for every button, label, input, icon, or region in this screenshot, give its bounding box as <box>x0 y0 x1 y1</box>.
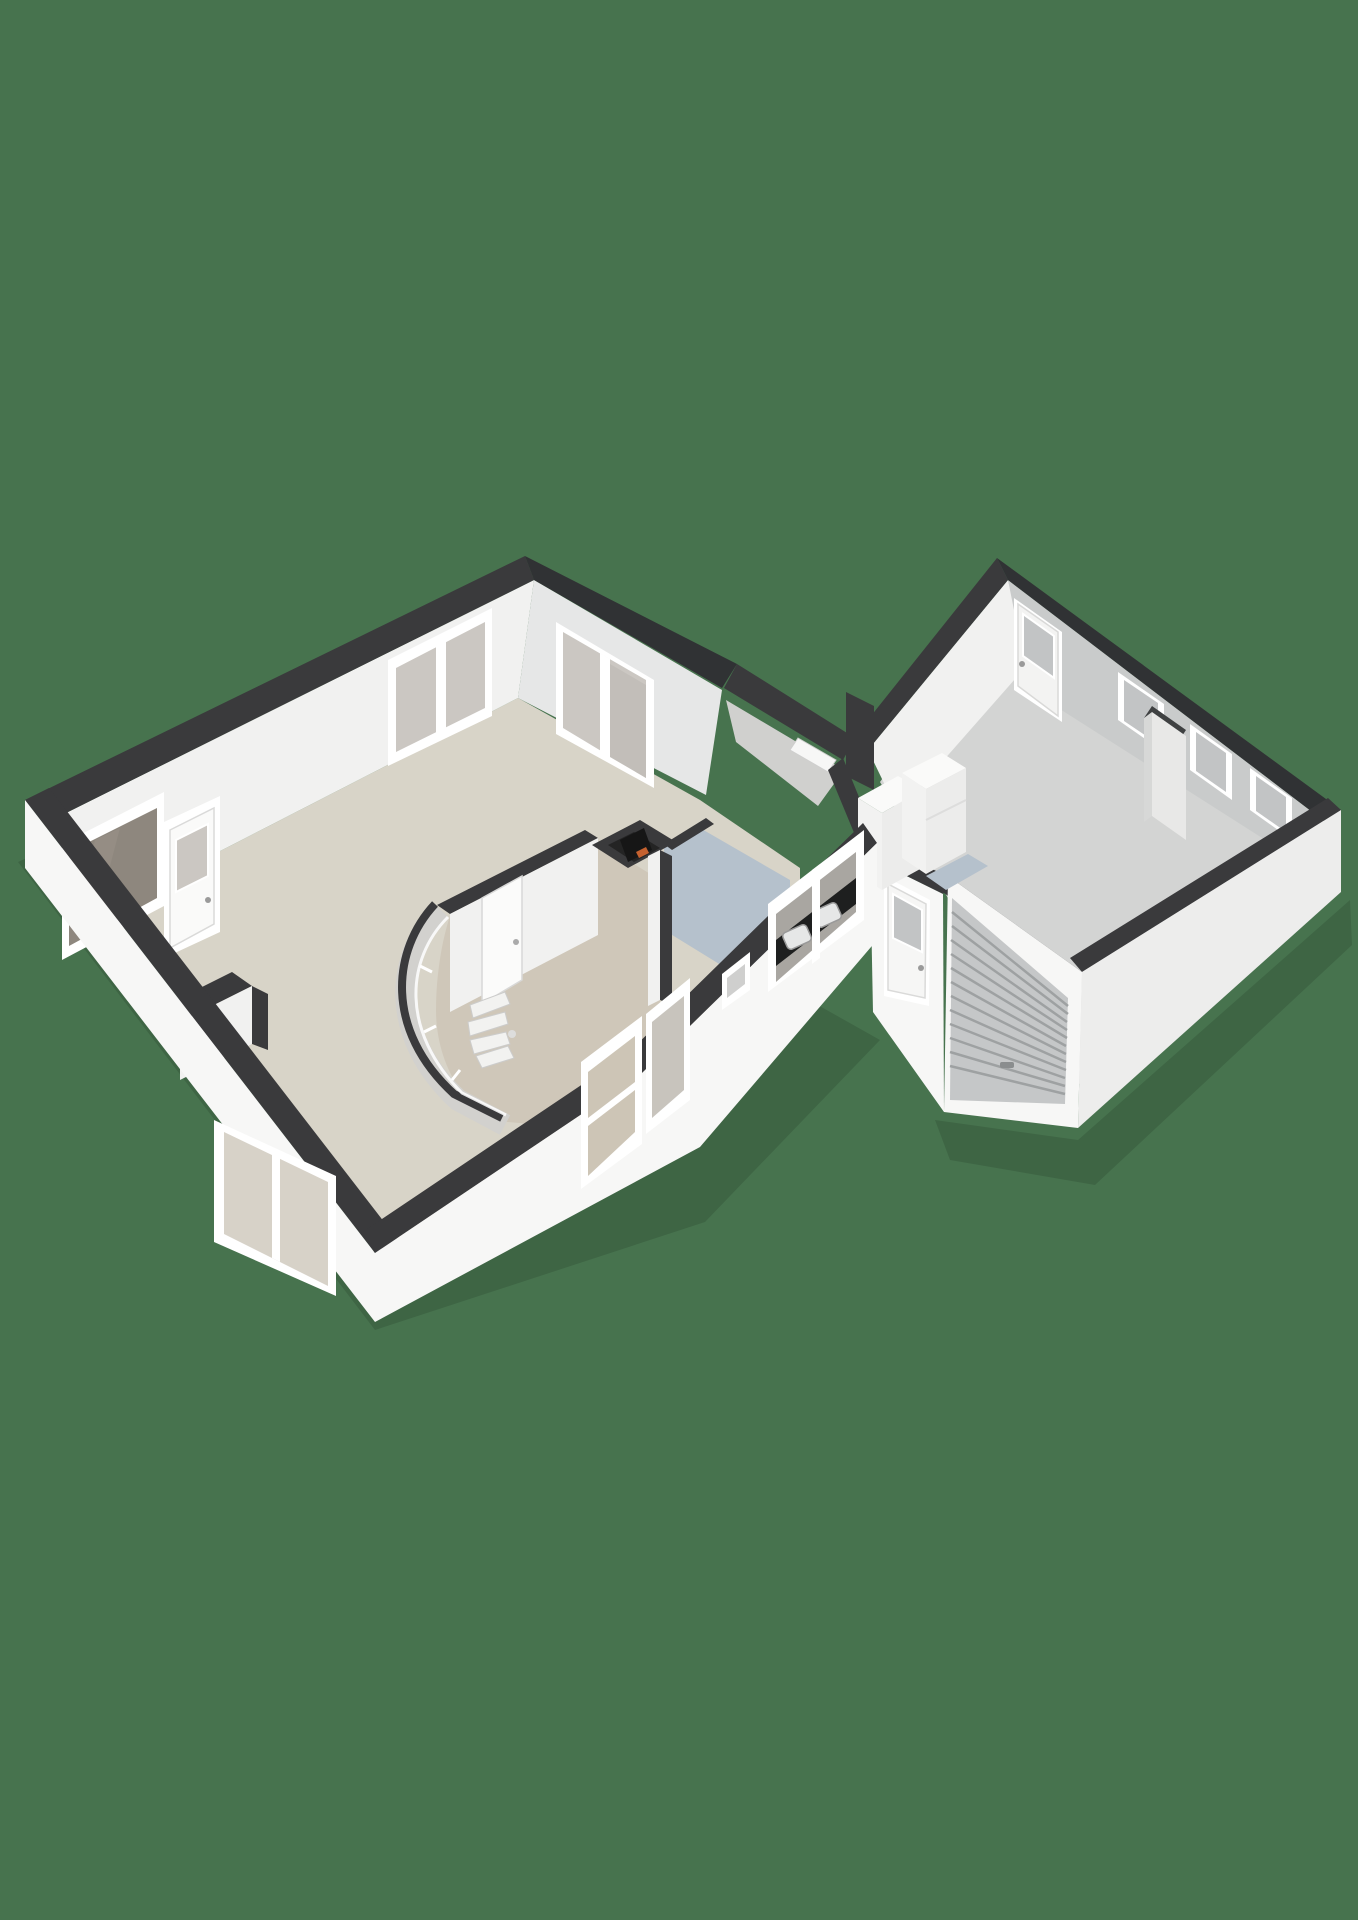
garage-west-corner-band <box>846 692 874 790</box>
staircase-pole <box>508 1030 516 1038</box>
floorplan-render-stage <box>0 0 1358 1920</box>
garage-door-handle <box>1019 661 1025 667</box>
main-house <box>25 556 877 1322</box>
back-door-handle <box>918 965 924 971</box>
hall-door-handle <box>513 939 519 945</box>
roller-door-handle <box>1000 1062 1014 1068</box>
front-door-handle <box>205 897 211 903</box>
floorplan-3d-canvas[interactable] <box>0 0 1358 1920</box>
hall-kitchen-divider <box>648 850 672 1006</box>
front-door-with-glass <box>164 796 220 958</box>
